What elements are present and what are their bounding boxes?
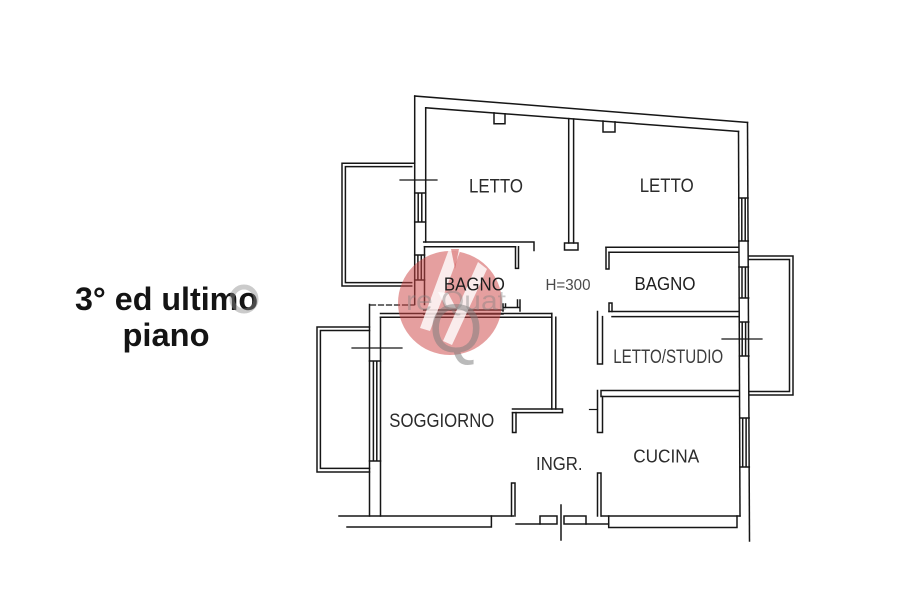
svg-text:CUCINA: CUCINA xyxy=(633,446,700,467)
svg-text:SOGGIORNO: SOGGIORNO xyxy=(389,410,494,432)
svg-text:LETTO: LETTO xyxy=(640,176,694,197)
svg-text:piano: piano xyxy=(123,317,210,353)
svg-text:BAGNO: BAGNO xyxy=(635,273,696,294)
svg-text:LETTO: LETTO xyxy=(469,176,523,197)
svg-text:H=300: H=300 xyxy=(546,277,591,294)
svg-text:LETTO/STUDIO: LETTO/STUDIO xyxy=(613,347,723,368)
svg-text:BAGNO: BAGNO xyxy=(444,273,505,294)
svg-text:INGR.: INGR. xyxy=(536,453,583,474)
